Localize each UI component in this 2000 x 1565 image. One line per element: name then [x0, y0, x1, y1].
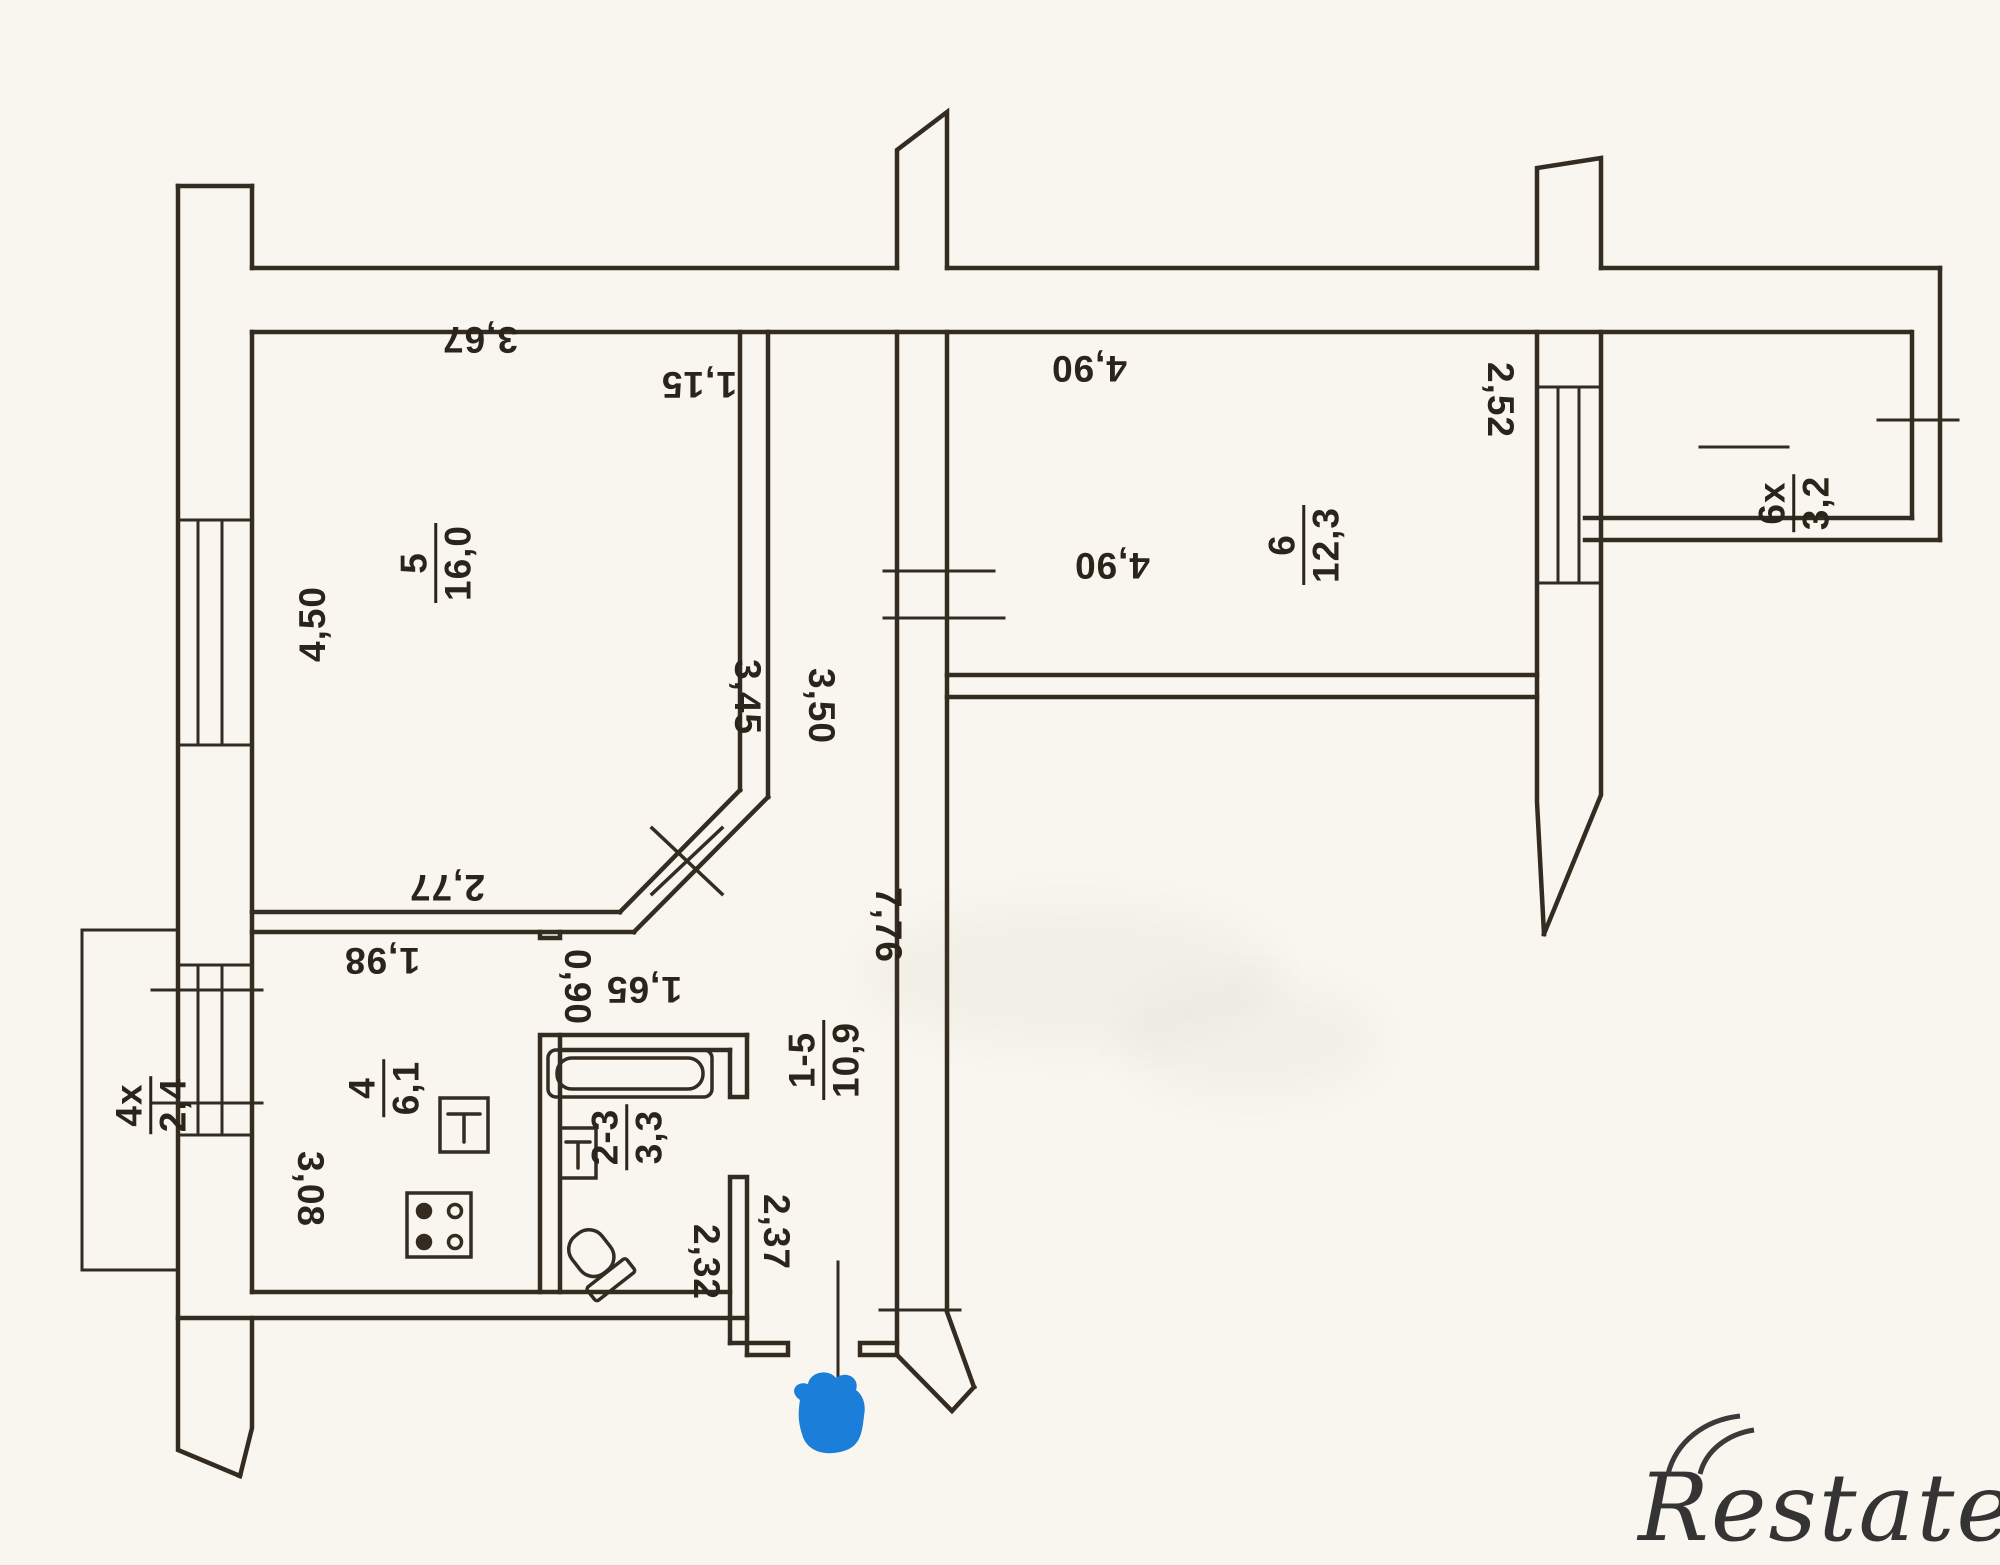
restate-watermark: Restate [1638, 1454, 2000, 1563]
wall-bath-top [560, 1035, 747, 1050]
balcony-right-number: 6x [1752, 474, 1795, 532]
stove-burner-4 [449, 1236, 462, 1249]
stove-burner-1 [418, 1205, 431, 1218]
room-hall-area: 10,9 [825, 1020, 868, 1100]
floorplan-page: 3,67 1,15 4,90 4,90 2,52 4,50 3,45 3,50 … [0, 0, 2000, 1565]
scan-smudge [1120, 980, 1380, 1100]
room-label-balcony-right: 6x 3,2 [1752, 474, 1838, 532]
room-label-bedroom: 6 12,3 [1262, 505, 1348, 585]
room-bath-area: 3,3 [628, 1104, 671, 1170]
dim-kitchen-height: 3,08 [289, 1151, 331, 1227]
door-room6-ticks [884, 571, 1004, 618]
wall-room6-balcony-right [1544, 332, 1601, 934]
wall-left-outer [178, 186, 240, 1476]
dim-corridor-width: 1,15 [661, 363, 737, 405]
wall-room5-bottom [252, 912, 634, 932]
dim-kitchen-door: 0,90 [556, 949, 598, 1025]
balcony6x-ticks [1700, 420, 1958, 447]
balcony-left-area: 2,4 [152, 1076, 195, 1134]
entrance-marker [794, 1372, 865, 1453]
room-bedroom-number: 6 [1262, 505, 1305, 585]
bathtub-inner [557, 1058, 703, 1089]
chamfer-x-mark [652, 828, 722, 894]
dim-room6-height: 2,52 [1479, 362, 1521, 438]
room-kitchen-number: 4 [342, 1059, 385, 1117]
toilet-bowl [562, 1223, 621, 1283]
room-bath-number: 2-3 [585, 1104, 628, 1170]
dim-room6-width-top: 4,90 [1051, 347, 1127, 389]
dim-hall-lower-height: 2,37 [755, 1194, 797, 1270]
room-bedroom-area: 12,3 [1305, 505, 1348, 585]
wall-bottom [178, 1292, 747, 1318]
watermark-swoosh-icon [1656, 1408, 1786, 1478]
dim-room5-bottom: 2,77 [409, 866, 485, 908]
wall-room6-bottom [947, 675, 1537, 697]
wall-hall-stub [897, 1312, 974, 1411]
dim-kitchen-width: 1,98 [344, 939, 420, 981]
stove-burner-3 [418, 1236, 431, 1249]
room-hall-number: 1-5 [782, 1020, 825, 1100]
room-label-living: 5 16,0 [394, 523, 480, 603]
wall-hall-bottom [730, 1343, 897, 1355]
dim-bath-height: 2,32 [685, 1224, 727, 1300]
room-label-kitchen: 4 6,1 [342, 1059, 428, 1117]
room-label-hall: 1-5 10,9 [782, 1020, 868, 1100]
room-label-balcony-left: 4x 2,4 [109, 1076, 195, 1134]
room-living-number: 5 [394, 523, 437, 603]
room-living-area: 16,0 [437, 523, 480, 603]
window-room6-balcony [1537, 387, 1601, 583]
windows-and-ticks [82, 387, 1958, 1378]
dim-room5-height: 4,50 [292, 586, 334, 662]
stove [407, 1193, 471, 1257]
dim-room5-right: 3,45 [726, 659, 768, 735]
wall-room6-balcony-left [1537, 332, 1544, 934]
window-room5 [178, 520, 252, 745]
floorplan-drawing [0, 0, 2000, 1565]
dim-corridor-height: 3,50 [800, 668, 842, 744]
room-label-bath: 2-3 3,3 [585, 1104, 671, 1170]
wall-protrusion-middle [897, 112, 947, 268]
wall-chamfer [620, 790, 768, 932]
wall-protrusion-right [1537, 158, 1601, 268]
wall-bath-right [730, 1035, 747, 1355]
room-kitchen-area: 6,1 [385, 1059, 428, 1117]
dim-room6-width-bottom: 4,90 [1074, 544, 1150, 586]
walls [178, 112, 1940, 1476]
kitchen-sink-faucet [448, 1114, 480, 1142]
dim-room5-width: 3,67 [442, 318, 518, 360]
balcony-left-number: 4x [109, 1076, 152, 1134]
dim-bath-width: 1,65 [606, 968, 682, 1010]
toilet [556, 1220, 635, 1302]
dim-hall-right-height: 7,76 [867, 887, 909, 963]
balcony-right-area: 3,2 [1795, 474, 1838, 532]
wall-left-stub-inner [240, 1318, 252, 1476]
stove-burner-2 [449, 1205, 462, 1218]
